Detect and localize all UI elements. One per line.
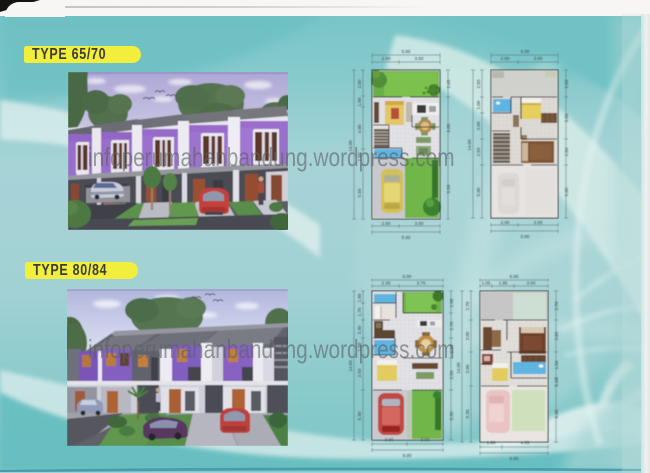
svg-text:5.30: 5.30 [465, 409, 470, 418]
svg-text:2.00: 2.00 [501, 220, 510, 225]
svg-text:3.00: 3.00 [415, 56, 424, 61]
svg-text:6.00: 6.00 [403, 274, 412, 279]
svg-text:4.00: 4.00 [357, 124, 362, 133]
svg-text:2.50: 2.50 [564, 79, 569, 88]
svg-text:5.00: 5.00 [521, 49, 530, 54]
svg-text:1.00: 1.00 [357, 97, 362, 106]
svg-text:1.70: 1.70 [357, 307, 362, 316]
svg-text:6.05: 6.05 [446, 123, 451, 132]
svg-text:2.50: 2.50 [357, 368, 362, 377]
svg-text:1.00: 1.00 [476, 100, 481, 109]
svg-text:5.30: 5.30 [357, 411, 362, 420]
svg-text:2.70: 2.70 [449, 321, 454, 330]
svg-text:3.00: 3.00 [421, 437, 430, 442]
svg-text:5.30: 5.30 [449, 411, 454, 420]
svg-text:4.05: 4.05 [521, 440, 530, 445]
svg-text:5.00: 5.00 [564, 187, 569, 196]
svg-text:2.00: 2.00 [382, 56, 391, 61]
svg-text:5.00: 5.00 [402, 49, 411, 54]
svg-text:6.00: 6.00 [403, 453, 412, 458]
svg-text:3.00: 3.00 [476, 121, 481, 130]
svg-text:3.00: 3.00 [534, 56, 543, 61]
svg-text:3.00: 3.00 [415, 221, 424, 226]
svg-text:1.50: 1.50 [554, 377, 559, 386]
svg-text:3.30: 3.30 [357, 325, 362, 334]
svg-text:3.50: 3.50 [564, 113, 569, 122]
svg-text:1.00: 1.00 [449, 298, 454, 307]
svg-text:5.30: 5.30 [554, 409, 559, 418]
svg-text:5.00: 5.00 [476, 187, 481, 196]
svg-text:6.00: 6.00 [510, 274, 519, 279]
svg-text:3.00: 3.00 [465, 364, 470, 373]
svg-text:2.00: 2.00 [501, 56, 510, 61]
svg-text:5.00: 5.00 [521, 234, 530, 239]
svg-text:2.50: 2.50 [357, 79, 362, 88]
svg-text:6.00: 6.00 [510, 456, 519, 461]
svg-text:5.00: 5.00 [402, 235, 411, 240]
svg-text:3.00: 3.00 [527, 281, 536, 286]
svg-text:1.00: 1.00 [357, 293, 362, 302]
svg-text:3.00: 3.00 [534, 220, 543, 225]
svg-text:1.05: 1.05 [482, 281, 491, 286]
svg-text:2.50: 2.50 [449, 370, 454, 379]
svg-text:2.50: 2.50 [476, 79, 481, 88]
svg-text:5.50: 5.50 [446, 184, 451, 193]
svg-text:3.75: 3.75 [417, 281, 426, 286]
svg-text:2.00: 2.00 [382, 221, 391, 226]
svg-text:3.00: 3.00 [385, 437, 394, 442]
svg-text:5.50: 5.50 [357, 188, 362, 197]
svg-text:2.70: 2.70 [465, 301, 470, 310]
svg-text:1.95: 1.95 [487, 440, 496, 445]
svg-text:2.70: 2.70 [554, 301, 559, 310]
svg-text:1.95: 1.95 [499, 281, 508, 286]
svg-text:2.45: 2.45 [446, 79, 451, 88]
svg-text:2.25: 2.25 [382, 281, 391, 286]
